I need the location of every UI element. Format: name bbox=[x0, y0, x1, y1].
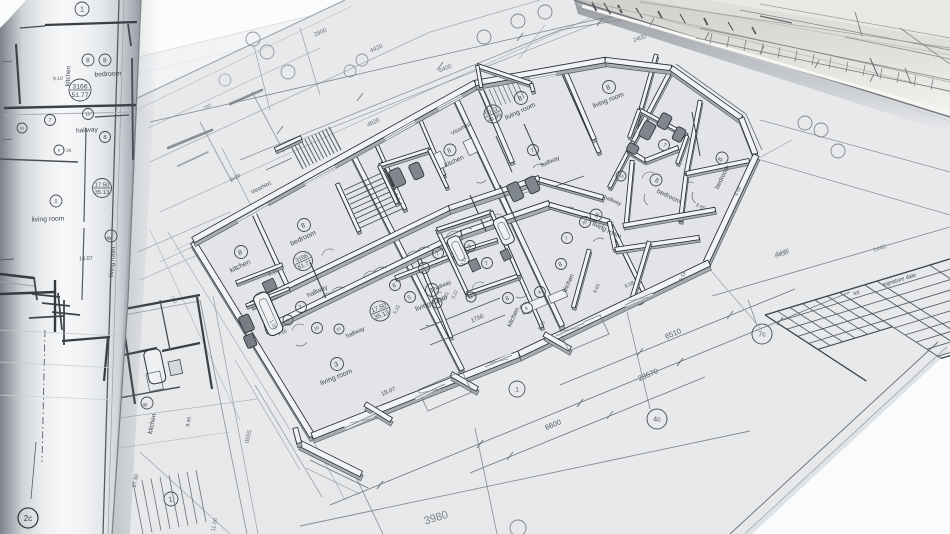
svg-text:3166: 3166 bbox=[72, 84, 87, 91]
svg-text:18.07: 18.07 bbox=[79, 256, 93, 263]
svg-text:living room: living room bbox=[31, 215, 64, 223]
svg-text:17.50: 17.50 bbox=[95, 183, 110, 189]
svg-text:bedroom: bedroom bbox=[94, 70, 121, 78]
svg-text:7.26: 7.26 bbox=[62, 148, 72, 153]
svg-text:35.13: 35.13 bbox=[95, 190, 110, 196]
svg-text:10: 10 bbox=[85, 112, 91, 117]
svg-text:10: 10 bbox=[20, 125, 25, 130]
svg-text:1: 1 bbox=[515, 386, 519, 393]
svg-text:0: 0 bbox=[55, 199, 58, 205]
svg-text:51.77: 51.77 bbox=[71, 92, 88, 99]
svg-text:8: 8 bbox=[103, 135, 106, 141]
svg-text:9.10: 9.10 bbox=[53, 76, 63, 83]
svg-text:7c: 7c bbox=[758, 332, 766, 339]
svg-text:1: 1 bbox=[80, 5, 84, 14]
svg-text:4c: 4c bbox=[653, 417, 661, 424]
svg-text:hallway: hallway bbox=[76, 126, 99, 134]
svg-text:2c: 2c bbox=[24, 514, 32, 523]
svg-text:7: 7 bbox=[48, 118, 51, 124]
